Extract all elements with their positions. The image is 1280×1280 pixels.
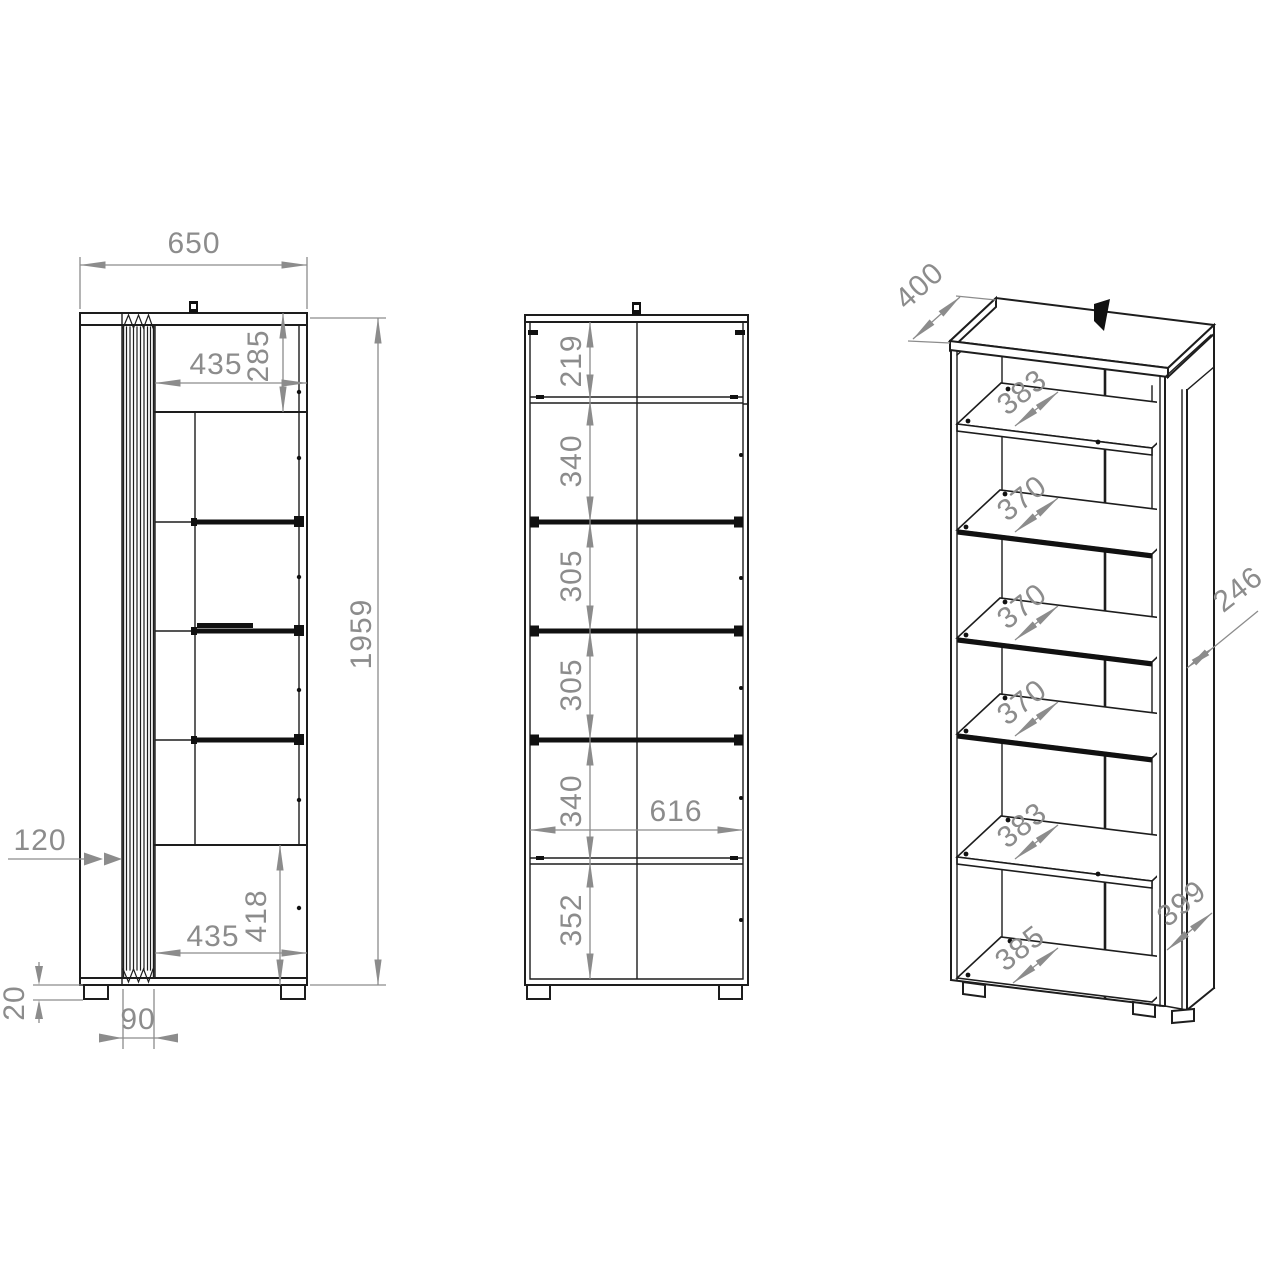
dim-top-compartment-height-label: 285	[242, 329, 275, 382]
side-foot-right	[281, 985, 305, 999]
dim-section-5-label: 340	[555, 774, 588, 827]
dim-flute-strip-width-label: 90	[120, 1003, 155, 1036]
side-body-outline	[80, 313, 307, 985]
front-foot-right	[719, 985, 742, 999]
dim-side-height-label: 1959	[345, 599, 378, 670]
dim-foot-height-label: 20	[0, 985, 31, 1020]
dim-section-2-label: 340	[555, 434, 588, 487]
front-foot-left	[527, 985, 550, 999]
dim-section-1-label: 219	[555, 334, 588, 387]
side-foot-left	[84, 985, 108, 999]
dim-section-4-label: 305	[555, 658, 588, 711]
dim-bottom-compartment-height-label: 418	[240, 889, 273, 942]
dim-interior-width-label: 616	[649, 795, 702, 828]
handle-profile	[197, 623, 253, 628]
dim-section-6-label: 352	[555, 893, 588, 946]
wall-bracket-icon	[632, 302, 641, 315]
furniture-technical-drawing: 650 1959 435 285 120 418 435	[0, 0, 1280, 1280]
dim-front-panel-depth-label: 120	[13, 824, 66, 857]
dim-side-width-label: 650	[167, 227, 220, 260]
dim-top-compartment-width-label: 435	[189, 348, 242, 381]
wall-bracket-icon	[189, 301, 198, 313]
dim-section-3-label: 305	[555, 549, 588, 602]
front-view: 219 340 305 305 340 352 616	[525, 302, 748, 999]
dim-bottom-compartment-width-label: 435	[186, 920, 239, 953]
